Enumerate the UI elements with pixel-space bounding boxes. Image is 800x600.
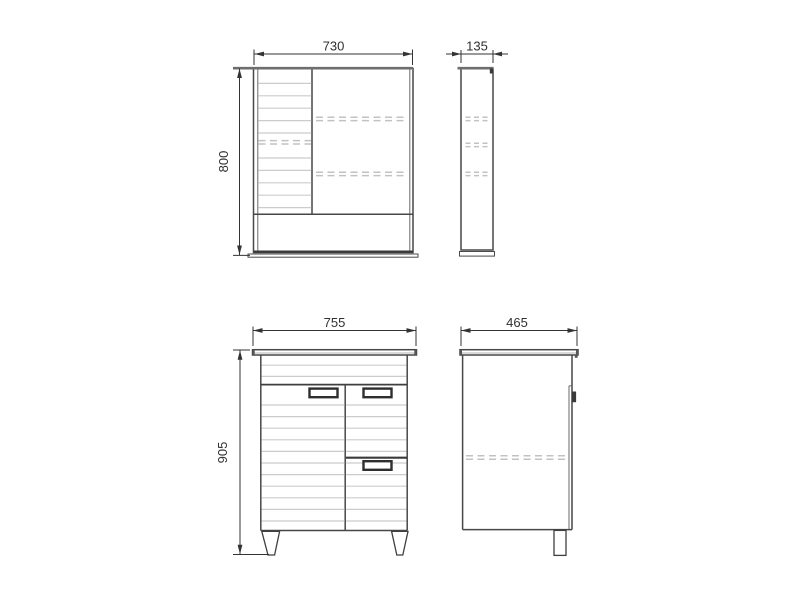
- dim-label-mirror-height: 800: [216, 151, 231, 173]
- technical-drawing: 730 800 135: [0, 0, 800, 600]
- dim-label-vanity-width: 755: [324, 315, 346, 330]
- dim-label-vanity-depth: 465: [506, 315, 528, 330]
- mirror-side-door-edge: [490, 69, 493, 74]
- dim-label-mirror-width: 730: [323, 39, 345, 54]
- vanity-bottom-drawer-handle: [364, 461, 392, 470]
- drawing-canvas: 730 800 135: [0, 0, 800, 600]
- vanity-top-drawer-handle: [364, 389, 392, 398]
- dim-label-mirror-depth: 135: [466, 39, 488, 54]
- mirror-base-strip: [248, 254, 418, 257]
- vanity-door-handle: [310, 389, 338, 398]
- mirror-side-base-strip: [460, 252, 495, 257]
- vanity-side-leg: [554, 530, 566, 555]
- vanity-side-handle: [572, 392, 576, 403]
- dim-label-vanity-height: 905: [215, 442, 230, 464]
